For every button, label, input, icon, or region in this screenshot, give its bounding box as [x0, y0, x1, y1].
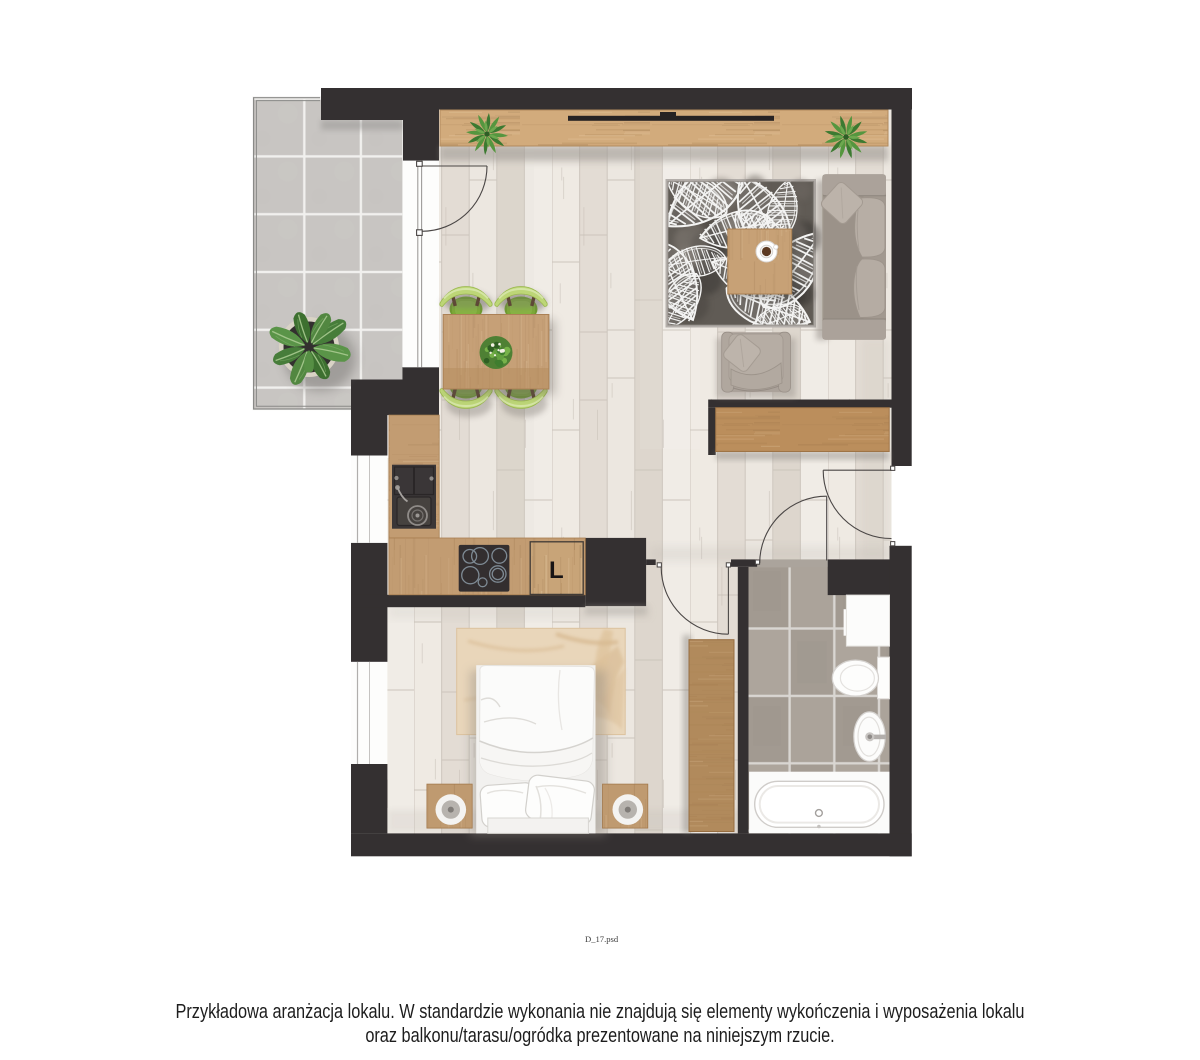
svg-text:D_17.psd: D_17.psd	[585, 934, 619, 944]
svg-text:L: L	[549, 557, 564, 584]
